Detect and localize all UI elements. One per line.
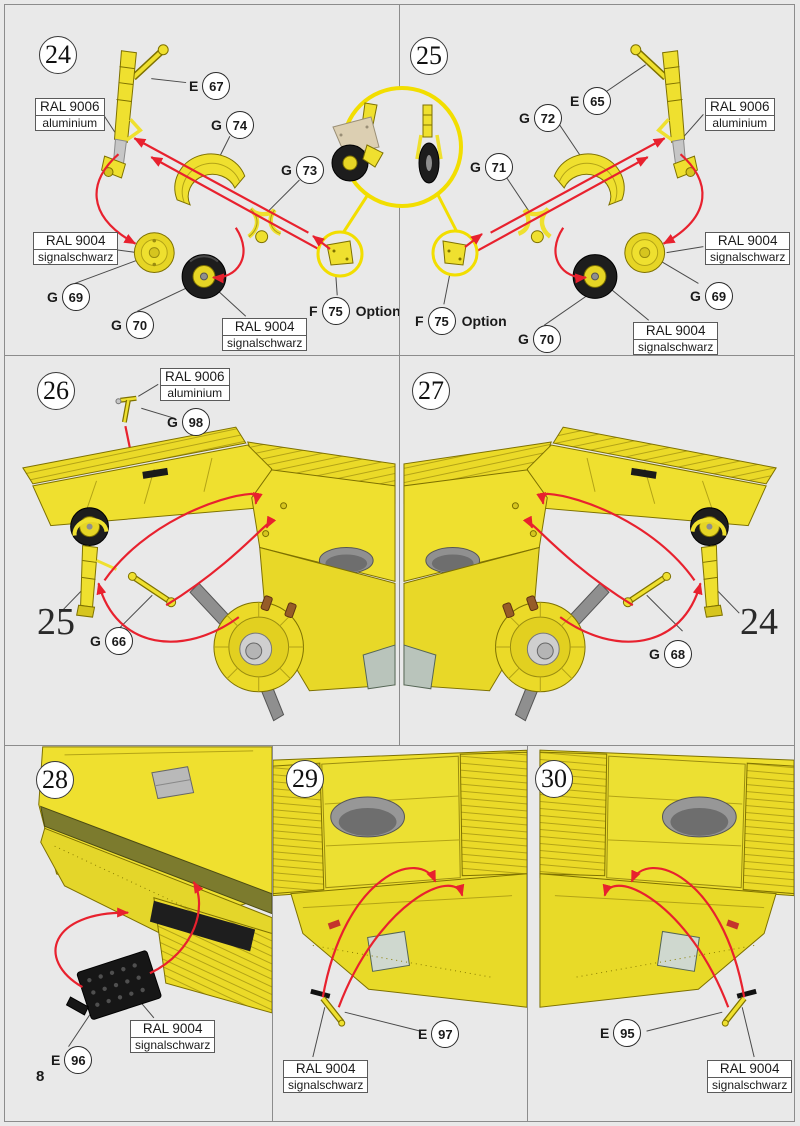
part-label-f75-option: F 75 Option [415,307,507,335]
part-number-circle: 69 [705,282,733,310]
part-number-circle: 70 [533,325,561,353]
part-number-circle: 65 [583,87,611,115]
ref-step-25: 25 [37,603,75,641]
part-letter: E [570,93,579,109]
part-label-g70: G 70 [518,325,561,353]
step-badge-25: 25 [410,37,448,75]
option-text: Option [356,303,400,319]
panel-step-27: 27 24 G 68 [400,356,795,746]
part-number-circle: 98 [182,408,210,436]
step-badge-28: 28 [36,761,74,799]
step-badge-30: 30 [535,760,573,798]
step25-landing-gear-illustration [400,5,794,355]
paint-label-ral9004: RAL 9004 signalschwarz [130,1020,215,1053]
part-number-circle: 75 [322,297,350,325]
paint-label-ral9004: RAL 9004 signalschwarz [705,232,790,265]
part-letter: G [281,162,292,178]
part-letter: G [690,288,701,304]
paint-label-ral9006: RAL 9006 aluminium [705,98,775,131]
part-number-circle: 70 [126,311,154,339]
step-part-e97 [311,991,345,1026]
part-label-g74: G 74 [211,111,254,139]
paint-label-ral9006: RAL 9006 aluminium [35,98,105,131]
ref-step-24: 24 [740,603,778,641]
paint-label-ral9004: RAL 9004 signalschwarz [33,232,118,265]
part-letter: G [167,414,178,430]
part-label-g71: G 71 [470,153,513,181]
part-number-circle: 71 [485,153,513,181]
part-letter: G [518,331,529,347]
part-number-circle: 95 [613,1019,641,1047]
part-label-g70: G 70 [111,311,154,339]
part-number-circle: 67 [202,72,230,100]
step-badge-24: 24 [39,36,77,74]
fuselage-section [39,747,272,1013]
step27-wing-underside-illustration [400,356,794,745]
mirrored-wing-assembly [404,427,776,721]
part-number-circle: 75 [428,307,456,335]
wheel-disc [134,233,174,273]
part-number-circle: 74 [226,111,254,139]
panel-step-24: 24 E 67 RAL 9006 aluminium G 74 G 73 RAL… [4,4,400,356]
instruction-page: 24 E 67 RAL 9006 aluminium G 74 G 73 RAL… [0,0,800,1126]
part-number-circle: 68 [664,640,692,668]
pin-part-g98 [116,398,136,422]
part-label-g69: G 69 [47,283,90,311]
fuselage-side [291,874,527,1007]
panel-step-29: 29 E 97 RAL 9004 signalschwarz [273,746,528,1122]
part-label-e97: E 97 [418,1020,459,1048]
attached-landing-gear [71,508,117,617]
part-number-circle: 69 [62,283,90,311]
paint-label-ral9004: RAL 9004 signalschwarz [283,1060,368,1093]
part-letter: E [418,1026,427,1042]
part-letter: G [519,110,530,126]
part-label-e67: E 67 [189,72,230,100]
panel-step-30: 30 E 95 RAL 9004 signalschwarz [528,746,795,1122]
part-letter: F [309,303,318,319]
part-label-g72: G 72 [519,104,562,132]
part-letter: E [600,1025,609,1041]
part-number-circle: 97 [431,1020,459,1048]
part-letter: E [189,78,198,94]
part-label-g98: G 98 [167,408,210,436]
panel-step-26: 26 RAL 9006 aluminium G 98 25 G 66 [4,356,400,746]
part-label-g69: G 69 [690,282,733,310]
part-letter: E [51,1052,60,1068]
part-number-circle: 66 [105,627,133,655]
page-number: 8 [36,1068,44,1085]
part-label-e65: E 65 [570,87,611,115]
part-letter: G [649,646,660,662]
part-letter: G [90,633,101,649]
part-letter: G [211,117,222,133]
part-letter: G [470,159,481,175]
step-badge-29: 29 [286,760,324,798]
paint-label-ral9006: RAL 9006 aluminium [160,368,230,401]
panel-step-28: 28 RAL 9004 signalschwarz E 96 [4,746,273,1122]
part-letter: F [415,313,424,329]
part-label-e95: E 95 [600,1019,641,1047]
option-text: Option [462,313,507,329]
step-badge-27: 27 [412,372,450,410]
panel-step-25: 25 E 65 RAL 9006 aluminium G 72 G 71 RAL… [400,4,795,356]
part-number-circle: 72 [534,104,562,132]
part-number-circle: 73 [296,156,324,184]
step28-fuselage-step-illustration [5,746,272,1121]
step-badge-26: 26 [37,372,75,410]
part-letter: G [111,317,122,333]
part-label-g66: G 66 [90,627,133,655]
part-label-e96: E 96 [51,1046,92,1074]
paint-label-ral9004: RAL 9004 signalschwarz [633,322,718,355]
rod-part-g66 [128,572,175,606]
mirrored-step-assembly [540,750,794,1057]
part-label-g73: G 73 [281,156,324,184]
part-label-g68: G 68 [649,640,692,668]
paint-label-ral9004: RAL 9004 signalschwarz [707,1060,792,1093]
part-letter: G [47,289,58,305]
part-number-circle: 96 [64,1046,92,1074]
part-label-f75-option: F 75 Option [309,297,400,325]
paint-label-ral9004: RAL 9004 signalschwarz [222,318,307,351]
oleo-strut [102,45,169,178]
